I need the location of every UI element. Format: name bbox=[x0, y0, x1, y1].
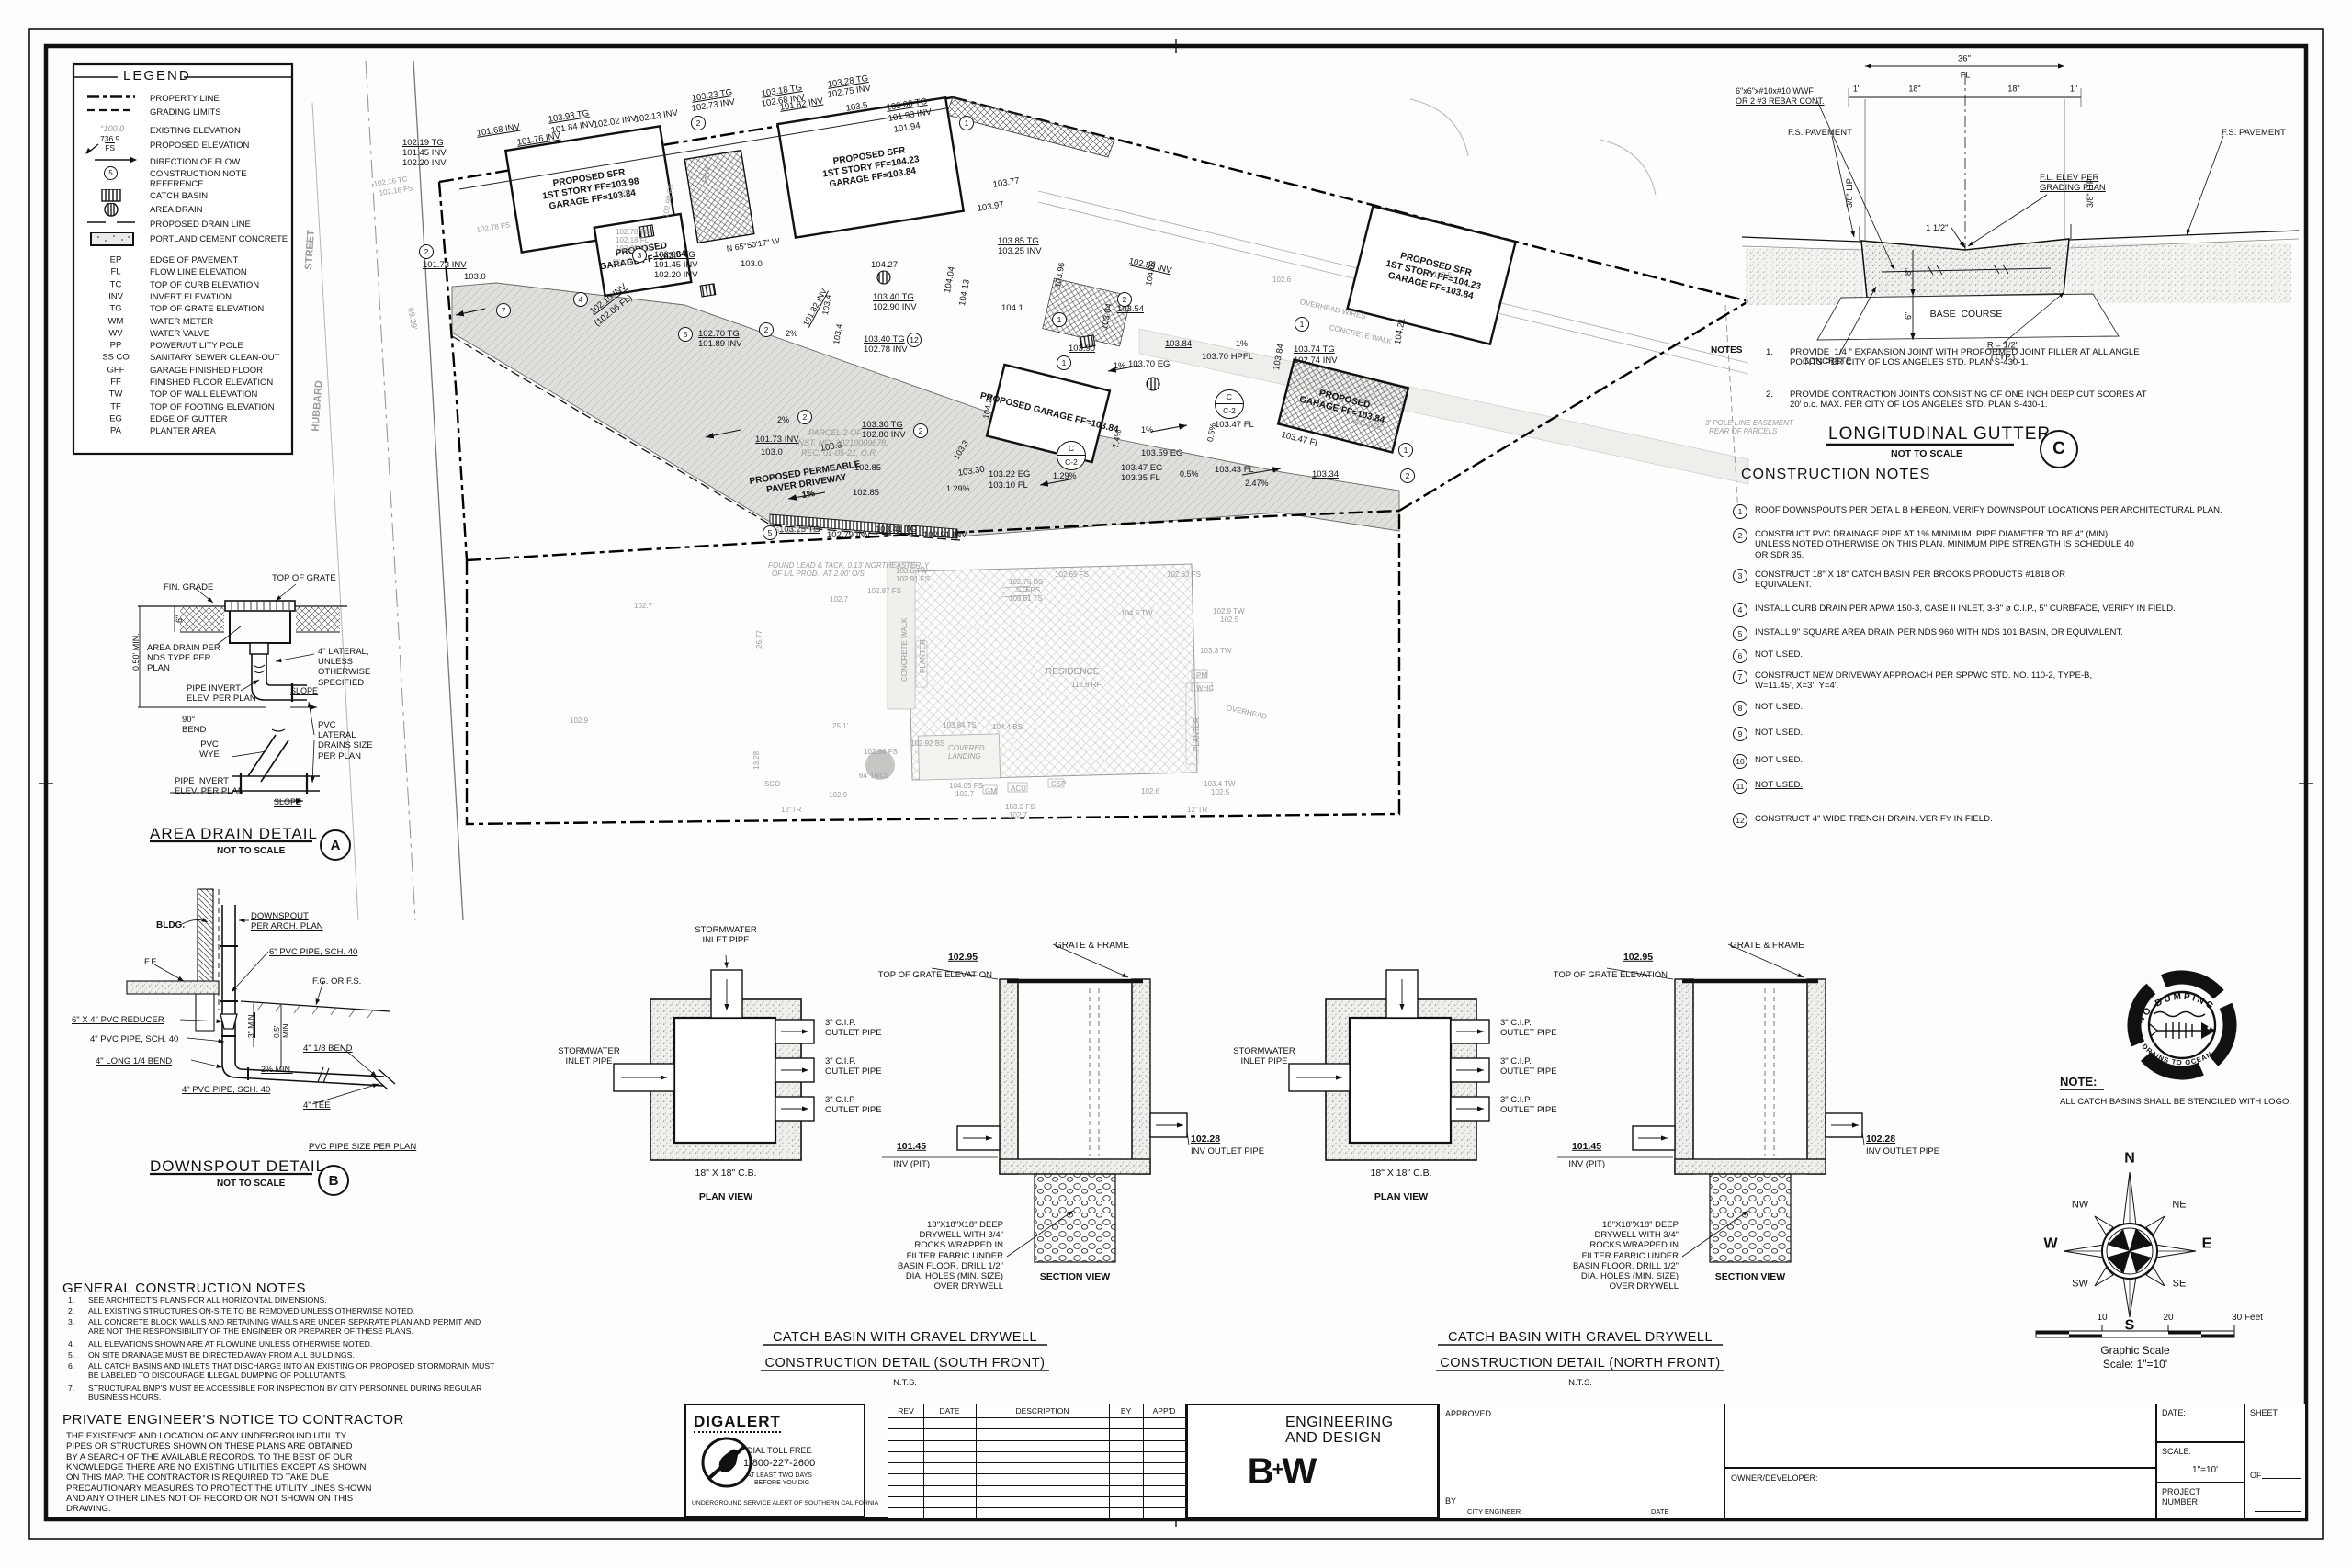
sheet-label: SHEET bbox=[2250, 1408, 2278, 1418]
elevation-callout: 102.5 bbox=[1220, 615, 1238, 624]
elevation-callout: 12"TR bbox=[1187, 806, 1207, 814]
legend-item-label: PROPOSED ELEVATION bbox=[150, 141, 249, 151]
catch-basin-label: 3" C.I.P. OUTLET PIPE bbox=[825, 1056, 882, 1077]
construction-note-ref-bubble: 4 bbox=[573, 292, 588, 307]
digalert-phone: 1-800-227-2600 bbox=[743, 1458, 815, 1470]
catch-basin-label: STORMWATER INLET PIPE bbox=[695, 925, 756, 945]
legend-item-label: EXISTING ELEVATION bbox=[150, 126, 241, 136]
owner-cell: OWNER/DEVELOPER: bbox=[1724, 1468, 2156, 1519]
digalert-line2: AT LEAST TWO DAYS bbox=[747, 1472, 812, 1480]
compass-direction-w: W bbox=[2043, 1236, 2057, 1254]
legend-item-label: GRADING LIMITS bbox=[150, 107, 221, 118]
construction-note-number: 10 bbox=[1733, 754, 1747, 769]
scale-tick-label: 30 Feet bbox=[2232, 1313, 2263, 1324]
elevation-callout: 103.30 TG bbox=[862, 420, 903, 430]
gutter-label: OR 2 #3 REBAR CONT. bbox=[1736, 96, 1825, 107]
gutter-label: 1 1/2" bbox=[1926, 223, 1949, 233]
catch-basin-label: 3" C.I.P OUTLET PIPE bbox=[825, 1095, 882, 1115]
gutter-label: FL bbox=[1961, 71, 1971, 81]
elevation-callout: REAR OF PARCELS bbox=[1709, 427, 1777, 435]
sheet-cell: SHEET OF bbox=[2245, 1404, 2306, 1519]
elevation-callout: 102.7 bbox=[830, 595, 848, 604]
rev-table-column-line bbox=[1109, 1404, 1110, 1518]
elevation-callout: 26.77 bbox=[755, 630, 763, 649]
rev-table-header: APP'D bbox=[1153, 1406, 1176, 1416]
gutter-notes-heading: NOTES bbox=[1711, 345, 1742, 356]
downspout-detail-linework bbox=[127, 889, 395, 1174]
catch-basin-label: INV (PIT) bbox=[893, 1159, 930, 1169]
catch-basin-label: 18"X18"X18" DEEP DRYWELL WITH 3/4" ROCKS… bbox=[1573, 1220, 1679, 1292]
construction-note-number: 4 bbox=[1733, 603, 1747, 617]
legend-abbrev-key: INV bbox=[108, 291, 123, 301]
gutter-title: LONGITUDINAL GUTTER bbox=[1828, 424, 2051, 445]
construction-note-number: 5 bbox=[1733, 626, 1747, 641]
elevation-callout: 102.63 FS bbox=[1167, 570, 1201, 579]
firm-logo-plus: + bbox=[1272, 1458, 1283, 1481]
compass-direction-s: S bbox=[2125, 1318, 2135, 1336]
elevation-callout: REC. 01-05-21, O.R. bbox=[801, 448, 878, 458]
gutter-label: (TYP.) bbox=[1991, 352, 2015, 362]
elevation-callout: 2% bbox=[786, 329, 797, 339]
scale-value: 1"=10' bbox=[2192, 1465, 2218, 1476]
area-drain-scale: NOT TO SCALE bbox=[217, 846, 285, 857]
firm-name2: AND DESIGN bbox=[1285, 1430, 1382, 1448]
elevation-callout: 103.25 INV bbox=[998, 246, 1042, 256]
catch-basin-label: 3" C.I.P. OUTLET PIPE bbox=[1500, 1056, 1557, 1077]
elevation-callout: COVERED LANDING bbox=[948, 744, 985, 761]
downspout-label: 6" PVC PIPE, SCH. 40 bbox=[269, 947, 357, 957]
elevation-callout: 25.1' bbox=[832, 722, 848, 730]
detail-ref-bottom: C-2 bbox=[1216, 403, 1243, 417]
compass-rose bbox=[2064, 1172, 2196, 1317]
rev-table-header: BY bbox=[1121, 1406, 1131, 1416]
notice-heading: PRIVATE ENGINEER'S NOTICE TO CONTRACTOR bbox=[62, 1412, 404, 1428]
area-drain-label: PVC LATERAL DRAINS SIZE PER PLAN bbox=[318, 720, 373, 761]
legend-abbrev-value: GARAGE FINISHED FLOOR bbox=[150, 366, 263, 376]
catch-basin-label: STORMWATER INLET PIPE bbox=[1233, 1046, 1295, 1066]
gutter-label: 1" bbox=[2070, 85, 2077, 95]
elevation-callout: 102.91 INV bbox=[923, 530, 967, 540]
rev-table-column-line bbox=[923, 1404, 924, 1518]
elevation-callout: 25.00' bbox=[612, 258, 634, 268]
scale-tick-label: 10 bbox=[2097, 1313, 2107, 1324]
elevation-callout: 102.7 bbox=[634, 602, 652, 610]
construction-note-text: INSTALL 9" SQUARE AREA DRAIN PER NDS 960… bbox=[1755, 627, 2123, 637]
elevation-callout: ACU bbox=[1011, 784, 1026, 793]
construction-note-number: 11 bbox=[1733, 779, 1747, 794]
rev-table-row bbox=[888, 1507, 1185, 1519]
downspout-label: 4" LONG 1/4 BEND bbox=[96, 1056, 172, 1066]
legend-abbrev-value: EDGE OF GUTTER bbox=[150, 414, 227, 424]
general-note-text: SEE ARCHITECT'S PLANS FOR ALL HORIZONTAL… bbox=[88, 1295, 327, 1304]
construction-note-number: 3 bbox=[1733, 569, 1747, 583]
elevation-callout: 103.40 TG bbox=[873, 292, 914, 302]
area-drain-label: AREA DRAIN PER NDS TYPE PER PLAN bbox=[147, 643, 220, 674]
elevation-callout: 103.84 TS bbox=[943, 721, 977, 729]
site-plan-linework bbox=[312, 61, 1748, 920]
elevation-callout: 104.5 TW bbox=[1121, 609, 1153, 617]
gutter-label: 3/8" LIP bbox=[1845, 178, 1855, 208]
area-drain-detail-linework bbox=[138, 584, 347, 841]
digalert-name: DIGALERT bbox=[694, 1413, 781, 1433]
elevation-callout: 102.85 bbox=[854, 463, 881, 473]
detail-ref-c-letter: C bbox=[2052, 439, 2065, 459]
elevation-callout: 102.9 bbox=[570, 716, 588, 725]
elevation-callout: INST. NO. 20210009878, bbox=[796, 438, 888, 448]
elevation-callout: 103.22 EG bbox=[989, 469, 1030, 479]
general-note-number: 1. bbox=[68, 1295, 74, 1304]
legend-abbrev-value: INVERT ELEVATION bbox=[150, 292, 232, 302]
elevation-callout: 102.78 INV bbox=[864, 344, 908, 355]
elevation-callout: SCO bbox=[764, 780, 780, 788]
downspout-label: 6" X 4" PVC REDUCER bbox=[72, 1015, 164, 1025]
detail-ref-a: A bbox=[320, 829, 351, 861]
proposed-elevation-icon: 736.9FS bbox=[100, 134, 119, 152]
elevation-callout: 102.95 TG bbox=[654, 250, 695, 260]
legend-abbrev-key: TF bbox=[110, 401, 121, 412]
construction-note-text: CONSTRUCT 4" WIDE TRENCH DRAIN. VERIFY I… bbox=[1755, 814, 1993, 824]
property-line-icon bbox=[87, 92, 139, 106]
downspout-label: 0.5' MIN. bbox=[272, 1021, 290, 1038]
construction-note-ref-bubble: 5 bbox=[678, 327, 693, 342]
detail-ref-c: C bbox=[2040, 430, 2078, 468]
rev-table-row bbox=[888, 1496, 1185, 1508]
elevation-callout: 2.47% bbox=[1245, 479, 1269, 489]
rev-table-row bbox=[888, 1462, 1185, 1474]
rev-table-header: DATE bbox=[939, 1406, 959, 1416]
rev-table-row bbox=[888, 1451, 1185, 1463]
downspout-label: 4" PVC PIPE, SCH. 40 bbox=[90, 1034, 178, 1044]
downspout-label: 4" TEE bbox=[303, 1100, 331, 1111]
city-engineer-label: CITY ENGINEER bbox=[1467, 1508, 1521, 1517]
general-note-text: ALL CATCH BASINS AND INLETS THAT DISCHAR… bbox=[88, 1361, 494, 1380]
elevation-callout: 102.19 TG bbox=[402, 138, 444, 148]
elevation-callout: 103.74 TG bbox=[1294, 344, 1335, 355]
legend-abbrev-value: TOP OF FOOTING ELEVATION bbox=[150, 402, 274, 412]
elevation-callout: 103.85 TG bbox=[998, 236, 1039, 246]
area-drain-label: 4" LATERAL, UNLESS OTHERWISE SPECIFIED bbox=[318, 647, 370, 688]
gutter-label: 6" bbox=[1904, 312, 1914, 320]
elevation-callout: CONCRETE WALK bbox=[900, 618, 909, 682]
downspout-label: 4" 1/8 BEND bbox=[303, 1043, 353, 1054]
compass-direction-se: SE bbox=[2173, 1279, 2187, 1291]
legend-abbrev-key: SS CO bbox=[102, 353, 130, 363]
downspout-title: DOWNSPOUT DETAIL bbox=[150, 1157, 325, 1176]
elevation-callout: 1.29% bbox=[1053, 471, 1077, 481]
elevation-callout: 103.34 bbox=[1312, 469, 1339, 479]
elevation-callout: OF L/L PROD., AT 2.00' O/S bbox=[772, 570, 865, 578]
elevation-callout: 104.1 bbox=[1001, 303, 1023, 313]
construction-note-ref-bubble: 1 bbox=[1057, 355, 1071, 370]
catch-basin-label: GRATE & FRAME bbox=[1730, 941, 1804, 952]
project-number-cell: PROJECT NUMBER bbox=[2156, 1483, 2245, 1519]
detail-ref-bottom: C-2 bbox=[1057, 455, 1085, 468]
area-drain-label: PIPE INVERT ELEV. PER PLAN bbox=[187, 683, 256, 704]
elevation-callout: 12"TR bbox=[781, 806, 801, 814]
cb-south-nts: N.T.S. bbox=[893, 1378, 917, 1388]
cb-south-title1: CATCH BASIN WITH GRAVEL DRYWELL bbox=[773, 1330, 1037, 1346]
legend-abbrev-key: PA bbox=[110, 426, 121, 436]
elevation-callout: 103.3 TW bbox=[1200, 647, 1232, 655]
catch-basin-label: TOP OF GRATE ELEVATION bbox=[878, 970, 992, 980]
elevation-callout: 102.87 FS bbox=[867, 587, 901, 595]
area-drain-label: TOP OF GRATE bbox=[272, 573, 336, 583]
elevation-callout: 102.85 bbox=[853, 488, 879, 498]
catch-basin-label: SECTION VIEW bbox=[1040, 1271, 1110, 1282]
legend-item-label: CONSTRUCTION NOTE REFERENCE bbox=[150, 169, 247, 189]
legend-abbrev-key: TW bbox=[109, 389, 123, 400]
downspout-scale: NOT TO SCALE bbox=[217, 1179, 285, 1190]
construction-note-ref-bubble: 12 bbox=[907, 333, 922, 347]
elevation-callout: RESIDENCE bbox=[1046, 667, 1099, 678]
elevation-callout: 103.70 HPFL bbox=[1202, 352, 1253, 362]
firm-logo-w: W bbox=[1282, 1451, 1315, 1492]
construction-note-text: NOT USED. bbox=[1755, 755, 1803, 765]
construction-note-text: CONSTRUCT PVC DRAINAGE PIPE AT 1% MINIMU… bbox=[1755, 529, 2134, 560]
gutter-note-number: 1. bbox=[1766, 347, 1773, 357]
downspout-label: BLDG. bbox=[156, 920, 185, 931]
construction-note-ref-bubble: 2 bbox=[913, 423, 928, 438]
elevation-callout: 1.29% bbox=[946, 484, 970, 494]
construction-note-ref-bubble: 2 bbox=[1117, 292, 1132, 307]
catch-basin-label: 3" C.I.P. OUTLET PIPE bbox=[1500, 1018, 1557, 1038]
area-drain-label: PIPE INVERT ELEV. PER PLAN bbox=[175, 776, 244, 796]
elevation-callout: 102.5 bbox=[1433, 271, 1452, 279]
catch-basin-label: 102.28 bbox=[1866, 1134, 1895, 1145]
legend-abbrev-key: FF bbox=[110, 377, 121, 387]
elevation-callout: 103.41 TG bbox=[876, 525, 917, 535]
downspout-label: DOWNSPOUT PER ARCH. PLAN bbox=[251, 911, 323, 931]
elevation-callout: 102.6 bbox=[1272, 276, 1291, 284]
legend-abbrev-key: EP bbox=[110, 254, 122, 265]
catch-basin-label: INV OUTLET PIPE bbox=[1191, 1146, 1264, 1156]
catch-basin-label: 102.95 bbox=[948, 952, 978, 963]
cb-north-title2: CONSTRUCTION DETAIL (NORTH FRONT) bbox=[1440, 1356, 1720, 1371]
legend-abbrev-value: TOP OF GRATE ELEVATION bbox=[150, 304, 264, 314]
rev-table-row bbox=[888, 1474, 1185, 1486]
legend-abbrev-key: TG bbox=[109, 304, 121, 314]
stencil-note-text: ALL CATCH BASINS SHALL BE STENCILED WITH… bbox=[2060, 1097, 2291, 1107]
date-cell: DATE: bbox=[2156, 1404, 2245, 1442]
revision-table: REVDATEDESCRIPTIONBYAPP'D bbox=[888, 1404, 1186, 1519]
elevation-callout: 103.0 bbox=[741, 259, 763, 269]
construction-note-ref-bubble: 1 bbox=[959, 116, 974, 130]
legend-abbrev-value: POWER/UTILITY POLE bbox=[150, 341, 243, 351]
general-note-text: ALL CONCRETE BLOCK WALLS AND RETAINING W… bbox=[88, 1317, 481, 1336]
catch-basin-label: INV (PIT) bbox=[1568, 1159, 1605, 1169]
construction-note-number: 8 bbox=[1733, 701, 1747, 716]
firm-box: B+W ENGINEERING AND DESIGN bbox=[1186, 1404, 1439, 1519]
elevation-callout: 13.28 bbox=[752, 751, 761, 770]
legend-item-label: CATCH BASIN bbox=[150, 191, 208, 201]
elevation-callout: 102.92 BS bbox=[910, 739, 944, 748]
cb-south-title2: CONSTRUCTION DETAIL (SOUTH FRONT) bbox=[765, 1356, 1046, 1371]
proposed-elevation-arrow bbox=[85, 142, 100, 155]
catch-basin-label: PLAN VIEW bbox=[1374, 1191, 1428, 1202]
elevation-callout: 104.4 BS bbox=[992, 723, 1023, 731]
catch-basin-north-linework bbox=[1289, 968, 1864, 1262]
construction-note-text: INSTALL CURB DRAIN PER APWA 150-3, CASE … bbox=[1755, 604, 2176, 614]
legend-abbrev-key: GFF bbox=[107, 365, 125, 375]
elevation-callout: PLANTER bbox=[919, 639, 927, 673]
construction-note-number: 9 bbox=[1733, 727, 1747, 741]
detail-ref-top: C bbox=[1057, 442, 1085, 455]
note-ref-icon: 5 bbox=[104, 166, 118, 180]
legend-abbrev-key: FL bbox=[110, 267, 120, 277]
catch-basin-label: 101.45 bbox=[897, 1141, 926, 1152]
construction-note-text: ROOF DOWNSPOUTS PER DETAIL B HEREON, VER… bbox=[1755, 505, 2222, 515]
rev-table-row bbox=[888, 1440, 1185, 1452]
firm-logo-b: B bbox=[1248, 1451, 1272, 1492]
elevation-callout: 101.89 INV bbox=[698, 339, 742, 349]
catch-basin-label: 3" C.I.P OUTLET PIPE bbox=[1500, 1095, 1557, 1115]
elevation-callout: 102.86 FS bbox=[864, 748, 898, 756]
legend-abbrev-key: WV bbox=[108, 328, 122, 338]
construction-note-text: CONSTRUCT NEW DRIVEWAY APPROACH PER SPPW… bbox=[1755, 671, 2092, 692]
downspout-label: 2% MIN. bbox=[261, 1065, 293, 1075]
legend-abbrev-value: SANITARY SEWER CLEAN-OUT bbox=[150, 353, 279, 363]
drain-line-icon bbox=[87, 218, 139, 231]
elevation-callout: 102.7 bbox=[955, 790, 974, 798]
scale-cell: SCALE: 1"=10' bbox=[2156, 1442, 2245, 1483]
construction-note-ref-bubble: 2 bbox=[691, 116, 706, 130]
area-drain-label: 6" bbox=[175, 615, 185, 623]
legend-abbrev-key: WM bbox=[108, 316, 124, 326]
gutter-label: 18" bbox=[1908, 85, 1920, 95]
elevation-callout: 103.47 EG bbox=[1121, 463, 1162, 473]
area-drain-title: AREA DRAIN DETAIL bbox=[150, 825, 318, 843]
elevation-callout: 2% bbox=[777, 415, 789, 425]
elevation-callout: 103.0 bbox=[464, 272, 486, 282]
elevation-callout: 102.7 bbox=[1009, 811, 1027, 819]
elevation-callout: 102.6 bbox=[1141, 787, 1159, 795]
elevation-callout: 103.84 bbox=[1165, 339, 1192, 349]
elevation-callout: 112.6 RF bbox=[1071, 681, 1101, 689]
general-note-number: 3. bbox=[68, 1317, 74, 1326]
elevation-callout: 102.91 FS bbox=[896, 575, 930, 583]
elevation-callout: 102.90 INV bbox=[873, 302, 917, 312]
construction-note-ref-bubble: 7 bbox=[496, 303, 511, 318]
area-drain-label: 0.50' MIN. bbox=[131, 633, 141, 671]
elevation-callout: 103.43 FL bbox=[1215, 465, 1254, 475]
construction-note-text: NOT USED. bbox=[1755, 649, 1803, 660]
project-title-cell bbox=[1724, 1404, 2156, 1468]
elevation-callout: PARCEL 2 OF bbox=[808, 428, 862, 438]
elevation-callout: 103.10 FL bbox=[989, 480, 1028, 491]
elevation-callout: WHC bbox=[1196, 684, 1214, 693]
legend-abbrev-key: PP bbox=[110, 340, 122, 350]
rev-table-column-line bbox=[976, 1404, 977, 1518]
legend-item-label: PROPERTY LINE bbox=[150, 94, 220, 104]
project-number-label: PROJECT NUMBER bbox=[2162, 1487, 2200, 1506]
elevation-callout: 102.70 TG bbox=[698, 329, 740, 339]
rev-table-row bbox=[888, 1417, 1185, 1429]
downspout-label: F.F. bbox=[144, 957, 158, 967]
cb-north-nts: N.T.S. bbox=[1568, 1378, 1592, 1388]
catch-basin-label: 101.45 bbox=[1572, 1141, 1601, 1152]
elevation-callout: 104.27 bbox=[871, 260, 898, 270]
elevation-callout: 64"TRCL bbox=[859, 772, 889, 780]
downspout-label: 3" MIN. bbox=[246, 1012, 255, 1038]
area-drain-label: SLOPE bbox=[274, 797, 301, 807]
legend-abbrev-value: WATER METER bbox=[150, 317, 213, 327]
compass-direction-sw: SW bbox=[2072, 1279, 2088, 1291]
legend-item-label: AREA DRAIN bbox=[150, 205, 203, 215]
compass-direction-n: N bbox=[2124, 1151, 2135, 1168]
sheet-of-label: OF bbox=[2250, 1471, 2262, 1481]
legend-abbrev-value: TOP OF CURB ELEVATION bbox=[150, 280, 259, 290]
area-drain-label: FIN. GRADE bbox=[164, 582, 213, 592]
construction-note-number: 2 bbox=[1733, 528, 1747, 543]
area-drain-label: SLOPE bbox=[290, 686, 318, 696]
elevation-callout: PLANTER bbox=[1193, 717, 1201, 751]
grading-plan-sheet: NO DUMPING THIS DRAINS TO OCEAN bbox=[0, 0, 2352, 1568]
detail-ref-a-letter: A bbox=[331, 838, 341, 853]
elevation-callout: 103.59 EG bbox=[1141, 448, 1182, 458]
construction-note-number: 7 bbox=[1733, 670, 1747, 684]
general-note-text: STRUCTURAL BMP'S MUST BE ACCESSIBLE FOR … bbox=[88, 1383, 481, 1402]
general-note-text: ALL ELEVATIONS SHOWN ARE AT FLOWLINE UNL… bbox=[88, 1339, 372, 1348]
elevation-callout: 101.45 INV bbox=[654, 260, 698, 270]
elevation-callout: PM bbox=[1196, 671, 1207, 680]
scale-label: SCALE: bbox=[2162, 1447, 2191, 1457]
legend-abbrev-key: EG bbox=[109, 413, 122, 423]
area-drain-label: PVC WYE bbox=[199, 739, 220, 760]
legend-item-label: PORTLAND CEMENT CONCRETE bbox=[150, 234, 288, 244]
general-note-number: 7. bbox=[68, 1383, 74, 1393]
digalert-footer: UNDERGROUND SERVICE ALERT OF SOUTHERN CA… bbox=[692, 1500, 878, 1507]
construction-note-number: 1 bbox=[1733, 504, 1747, 519]
digalert-box: DIGALERT DIAL TOLL FREE 1-800-227-2600 A… bbox=[684, 1404, 865, 1517]
legend-title: LEGEND bbox=[123, 68, 191, 85]
elevation-callout: 103.40 TG bbox=[864, 334, 905, 344]
construction-note-text: CONSTRUCT 18" X 18" CATCH BASIN PER BROO… bbox=[1755, 570, 2065, 591]
approved-cell: APPROVED BY CITY ENGINEER DATE bbox=[1439, 1404, 1724, 1519]
construction-note-ref-bubble: 1 bbox=[1398, 443, 1413, 457]
construction-note-ref-bubble: 3 bbox=[632, 248, 647, 263]
elevation-callout: 102.5 bbox=[1211, 788, 1229, 796]
legend-abbrev-value: FLOW LINE ELEVATION bbox=[150, 267, 247, 277]
downspout-label: F.G. OR F.S. bbox=[312, 976, 361, 987]
fish-skeleton-icon bbox=[2150, 1022, 2201, 1039]
general-note-number: 4. bbox=[68, 1339, 74, 1348]
general-note-number: 2. bbox=[68, 1306, 74, 1315]
detail-ref-b-letter: B bbox=[329, 1173, 339, 1189]
rev-table-header: REV bbox=[898, 1406, 913, 1416]
downspout-label: PVC PIPE SIZE PER PLAN bbox=[309, 1142, 416, 1152]
catch-basin-label: INV OUTLET PIPE bbox=[1866, 1146, 1939, 1156]
gutter-label: R = 1/2" bbox=[1987, 340, 2018, 350]
elevation-callout: 103.47 FL bbox=[1215, 420, 1254, 430]
elevation-callout: CSP bbox=[1051, 780, 1066, 788]
construction-note-ref-bubble: 5 bbox=[763, 525, 777, 540]
general-note-text: ALL EXISTING STRUCTURES ON-SITE TO BE RE… bbox=[88, 1306, 414, 1315]
scale-tick-label: 20 bbox=[2163, 1313, 2173, 1324]
elevation-callout: 101.73 INV bbox=[423, 260, 467, 270]
gutter-label: CONCRETE bbox=[1803, 356, 1851, 367]
catch-basin-label: TOP OF GRATE ELEVATION bbox=[1554, 970, 1668, 980]
notice-text: THE EXISTENCE AND LOCATION OF ANY UNDERG… bbox=[66, 1431, 371, 1515]
gutter-label: BASE COURSE bbox=[1930, 309, 2003, 320]
elevation-callout: 102.65 FS bbox=[1055, 570, 1089, 579]
catch-basin-label: 3" C.I.P. OUTLET PIPE bbox=[825, 1018, 882, 1038]
construction-note-number: 6 bbox=[1733, 649, 1747, 663]
gutter-label: F.S. PAVEMENT bbox=[1788, 128, 1852, 138]
catch-basin-icon bbox=[87, 189, 139, 203]
elevation-callout: 25' bbox=[621, 188, 632, 198]
elevation-callout: 102.20 INV bbox=[654, 270, 698, 280]
gutter-note-text: PROVIDE CONTRACTION JOINTS CONSISTING OF… bbox=[1790, 389, 2147, 411]
